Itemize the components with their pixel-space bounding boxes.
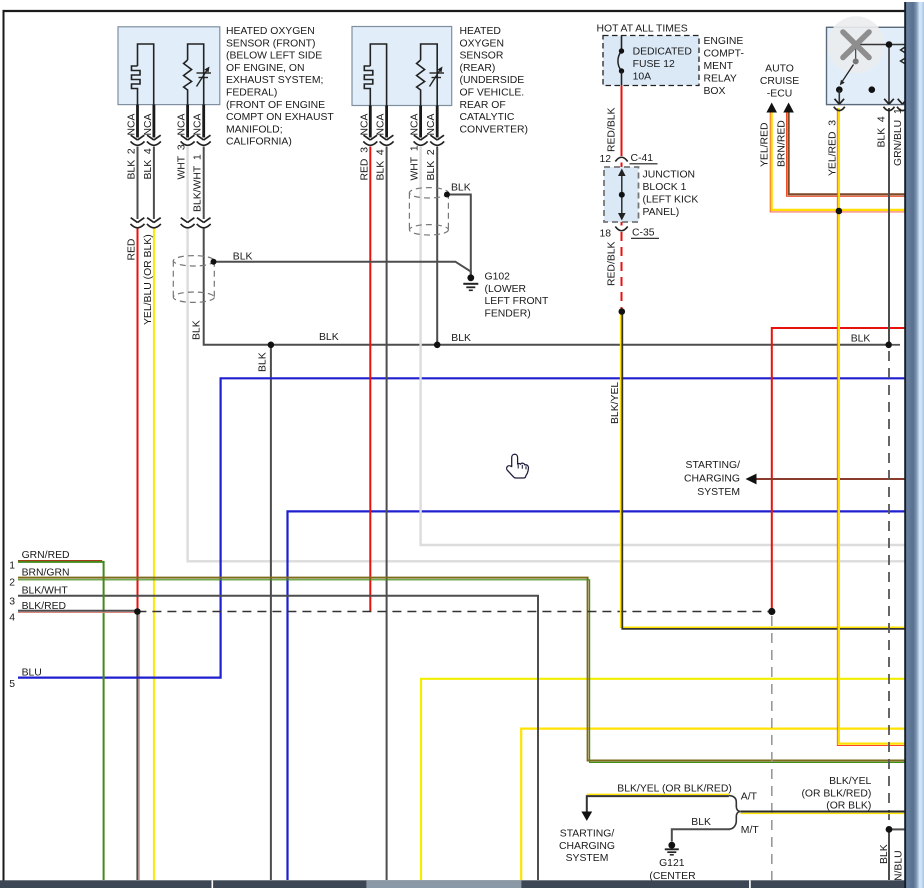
svg-text:BLK: BLK bbox=[879, 844, 890, 864]
svg-text:CHARGING: CHARGING bbox=[684, 474, 740, 485]
svg-text:C-35: C-35 bbox=[632, 228, 655, 239]
svg-text:(OR BLK): (OR BLK) bbox=[826, 801, 871, 812]
svg-text:G121: G121 bbox=[659, 858, 685, 869]
svg-text:YEL/RED 3: YEL/RED 3 bbox=[828, 120, 839, 176]
svg-text:FENDER): FENDER) bbox=[485, 308, 531, 319]
svg-text:10A: 10A bbox=[633, 72, 652, 83]
svg-text:ENGINE: ENGINE bbox=[704, 36, 744, 47]
svg-text:RED 3: RED 3 bbox=[359, 147, 370, 181]
svg-text:BLK 2: BLK 2 bbox=[127, 148, 138, 179]
svg-text:HEATED OXYGEN: HEATED OXYGEN bbox=[226, 26, 315, 37]
svg-text:BLK: BLK bbox=[233, 252, 253, 263]
svg-text:12: 12 bbox=[599, 154, 611, 165]
svg-text:C-41: C-41 bbox=[631, 153, 654, 164]
svg-text:BLK 4: BLK 4 bbox=[143, 148, 154, 179]
svg-text:NCA: NCA bbox=[376, 113, 387, 135]
svg-text:N/BLU: N/BLU bbox=[894, 850, 905, 881]
svg-text:STARTING/: STARTING/ bbox=[560, 829, 615, 840]
svg-text:BRN/GRN: BRN/GRN bbox=[22, 568, 70, 579]
svg-text:A/T: A/T bbox=[741, 791, 758, 802]
svg-text:CRUISE: CRUISE bbox=[760, 76, 799, 87]
svg-text:NCA: NCA bbox=[177, 113, 188, 135]
svg-text:COMPT-: COMPT- bbox=[704, 49, 744, 60]
svg-text:(FRONT OF ENGINE: (FRONT OF ENGINE bbox=[226, 100, 325, 111]
svg-text:MANIFOLD;: MANIFOLD; bbox=[226, 124, 283, 135]
svg-text:REAR OF: REAR OF bbox=[460, 100, 506, 111]
svg-text:SENSOR: SENSOR bbox=[460, 51, 504, 62]
svg-text:BLK 4: BLK 4 bbox=[376, 149, 387, 180]
svg-text:GRN/RED: GRN/RED bbox=[22, 550, 70, 561]
svg-text:HOT AT ALL TIMES: HOT AT ALL TIMES bbox=[597, 24, 688, 35]
svg-text:5: 5 bbox=[9, 679, 15, 690]
svg-text:BLK/YEL: BLK/YEL bbox=[610, 382, 621, 424]
svg-text:BLK: BLK bbox=[192, 320, 203, 340]
svg-text:(LOWER: (LOWER bbox=[485, 284, 527, 295]
svg-text:COMPT ON EXHAUST: COMPT ON EXHAUST bbox=[226, 112, 334, 123]
svg-text:(BELOW LEFT SIDE: (BELOW LEFT SIDE bbox=[226, 51, 322, 62]
svg-text:OF VEHICLE.: OF VEHICLE. bbox=[460, 88, 525, 99]
svg-text:(LEFT KICK: (LEFT KICK bbox=[643, 195, 699, 206]
svg-text:YEL/BLU (OR BLK): YEL/BLU (OR BLK) bbox=[143, 234, 154, 325]
svg-text:(OR BLK/RED): (OR BLK/RED) bbox=[801, 788, 871, 799]
svg-text:BOX: BOX bbox=[704, 86, 726, 97]
svg-text:OXYGEN: OXYGEN bbox=[460, 38, 504, 49]
svg-text:BLK: BLK bbox=[851, 334, 871, 345]
svg-text:18: 18 bbox=[599, 229, 611, 240]
svg-text:(REAR): (REAR) bbox=[460, 63, 496, 74]
svg-text:-ECU: -ECU bbox=[767, 89, 792, 100]
svg-text:BLOCK 1: BLOCK 1 bbox=[643, 182, 687, 193]
svg-text:1: 1 bbox=[9, 561, 15, 572]
svg-text:2: 2 bbox=[9, 578, 15, 589]
svg-text:CATALYTIC: CATALYTIC bbox=[460, 112, 515, 123]
svg-text:FEDERAL): FEDERAL) bbox=[226, 88, 277, 99]
svg-text:STARTING/: STARTING/ bbox=[686, 460, 741, 471]
svg-text:SENSOR (FRONT): SENSOR (FRONT) bbox=[226, 38, 315, 49]
svg-text:EXHAUST SYSTEM;: EXHAUST SYSTEM; bbox=[226, 75, 323, 86]
svg-text:CONVERTER): CONVERTER) bbox=[460, 124, 529, 135]
svg-text:BLK: BLK bbox=[451, 182, 471, 193]
svg-text:BLK/YEL (OR BLK/RED): BLK/YEL (OR BLK/RED) bbox=[617, 784, 732, 795]
svg-text:RED/BLK: RED/BLK bbox=[606, 107, 617, 152]
svg-text:BLK/YEL: BLK/YEL bbox=[829, 776, 871, 787]
svg-text:BLK: BLK bbox=[258, 352, 269, 372]
svg-text:NCA: NCA bbox=[359, 113, 370, 135]
svg-text:(UNDERSIDE: (UNDERSIDE bbox=[460, 75, 525, 86]
svg-text:LEFT FRONT: LEFT FRONT bbox=[485, 296, 550, 307]
svg-text:NCA: NCA bbox=[143, 113, 154, 135]
svg-text:CHARGING: CHARGING bbox=[559, 841, 615, 852]
svg-text:BLK 4: BLK 4 bbox=[877, 116, 888, 147]
svg-text:CALIFORNIA): CALIFORNIA) bbox=[226, 137, 292, 148]
svg-text:GRN/BLU 1: GRN/BLU 1 bbox=[893, 108, 904, 166]
svg-text:BLK: BLK bbox=[451, 333, 471, 344]
svg-text:BLU: BLU bbox=[22, 668, 42, 679]
svg-text:BLK: BLK bbox=[691, 817, 711, 828]
svg-text:RED: RED bbox=[127, 239, 138, 261]
svg-text:RED/BLK: RED/BLK bbox=[606, 241, 617, 286]
svg-text:WHT 1: WHT 1 bbox=[410, 145, 421, 180]
svg-text:BLK/RED: BLK/RED bbox=[22, 601, 66, 612]
svg-text:BRN/RED: BRN/RED bbox=[777, 120, 788, 167]
svg-text:YEL/RED: YEL/RED bbox=[759, 123, 770, 167]
svg-text:NCA: NCA bbox=[193, 113, 204, 135]
svg-text:DEDICATED: DEDICATED bbox=[633, 47, 692, 58]
svg-text:SYSTEM: SYSTEM bbox=[697, 487, 740, 498]
svg-text:BLK/WHT: BLK/WHT bbox=[22, 586, 69, 597]
svg-text:3: 3 bbox=[9, 597, 15, 608]
svg-text:BLK/WHT 1: BLK/WHT 1 bbox=[193, 154, 204, 212]
svg-text:G102: G102 bbox=[485, 272, 511, 283]
svg-text:FUSE 12: FUSE 12 bbox=[633, 59, 675, 70]
svg-text:SYSTEM: SYSTEM bbox=[566, 853, 609, 864]
svg-text:JUNCTION: JUNCTION bbox=[643, 170, 696, 181]
svg-text:M/T: M/T bbox=[741, 825, 760, 836]
svg-text:NCA: NCA bbox=[426, 113, 437, 135]
svg-text:(CENTER: (CENTER bbox=[649, 871, 696, 882]
svg-text:BLK 2: BLK 2 bbox=[426, 149, 437, 180]
svg-text:NCA: NCA bbox=[410, 113, 421, 135]
svg-text:BLK: BLK bbox=[319, 332, 339, 343]
svg-text:HEATED: HEATED bbox=[460, 26, 501, 37]
svg-text:OF ENGINE, ON: OF ENGINE, ON bbox=[226, 63, 305, 74]
svg-text:AUTO: AUTO bbox=[765, 64, 794, 75]
svg-text:PANEL): PANEL) bbox=[643, 207, 680, 218]
svg-text:RELAY: RELAY bbox=[704, 74, 737, 85]
svg-text:NCA: NCA bbox=[127, 113, 138, 135]
svg-text:4: 4 bbox=[9, 613, 15, 624]
svg-text:WHT 3: WHT 3 bbox=[177, 144, 188, 179]
svg-text:MENT: MENT bbox=[704, 61, 734, 72]
